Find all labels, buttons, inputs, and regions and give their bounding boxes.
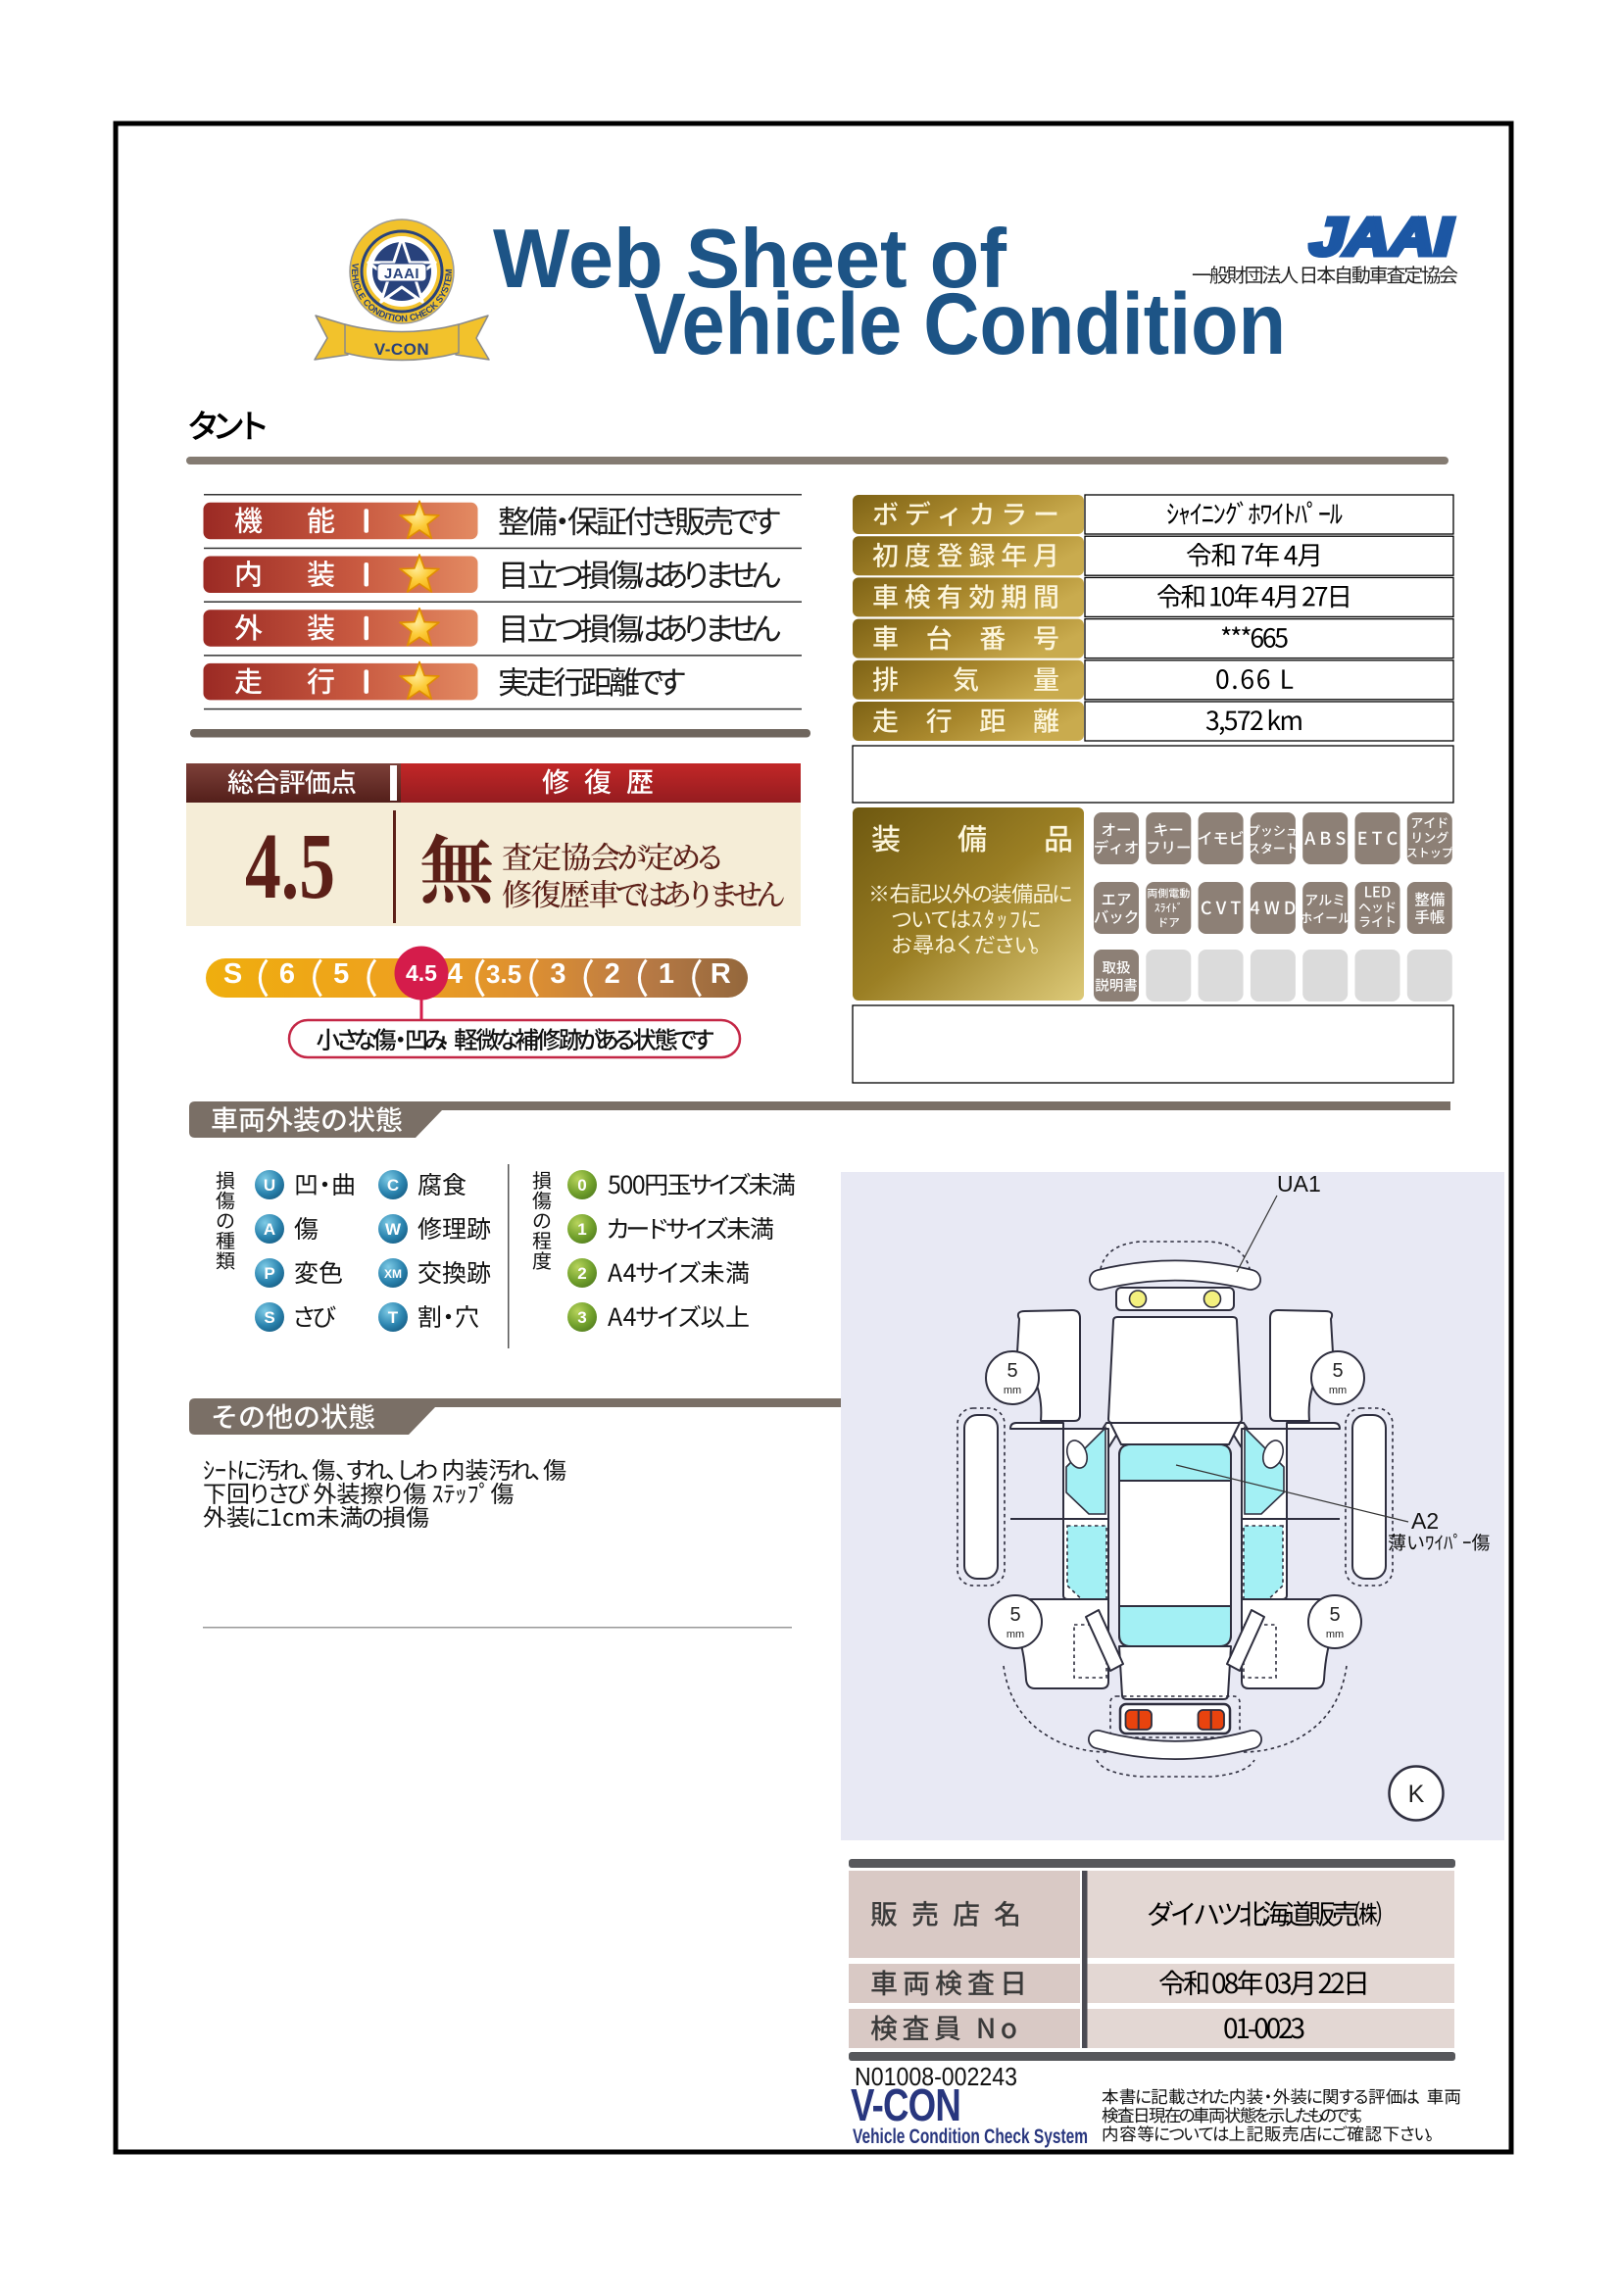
- svg-text:5: 5: [1009, 1604, 1020, 1626]
- svg-text:T: T: [388, 1308, 399, 1327]
- svg-text:C: C: [387, 1176, 399, 1195]
- svg-text:U: U: [264, 1176, 275, 1195]
- svg-text:P: P: [264, 1264, 274, 1283]
- svg-text:S: S: [223, 958, 242, 990]
- svg-text:UA1: UA1: [1277, 1171, 1321, 1197]
- svg-text:1: 1: [577, 1220, 586, 1239]
- svg-text:4.5: 4.5: [406, 960, 437, 986]
- svg-text:A: A: [264, 1220, 275, 1239]
- svg-text:K: K: [1408, 1781, 1425, 1808]
- svg-text:mm: mm: [1004, 1385, 1021, 1396]
- svg-text:4.5: 4.5: [245, 813, 335, 918]
- svg-text:4: 4: [447, 958, 463, 990]
- svg-text:JAAI: JAAI: [384, 266, 419, 282]
- svg-text:Vehicle Condition Check System: Vehicle Condition Check System: [853, 2125, 1088, 2148]
- svg-text:JAAI: JAAI: [1304, 207, 1460, 267]
- svg-text:A2: A2: [1411, 1508, 1439, 1534]
- svg-text:S: S: [264, 1308, 274, 1327]
- svg-text:2: 2: [577, 1264, 586, 1283]
- svg-text:3: 3: [577, 1308, 586, 1327]
- svg-text:5: 5: [1006, 1360, 1017, 1382]
- svg-text:Vehicle Condition: Vehicle Condition: [634, 274, 1286, 372]
- svg-text:2: 2: [605, 958, 620, 990]
- svg-text:mm: mm: [1006, 1629, 1024, 1640]
- svg-text:mm: mm: [1329, 1385, 1347, 1396]
- svg-text:5: 5: [333, 958, 349, 990]
- svg-text:6: 6: [279, 958, 295, 990]
- svg-text:R: R: [711, 958, 731, 990]
- svg-text:V-CON: V-CON: [851, 2079, 960, 2130]
- svg-text:V-CON: V-CON: [374, 340, 429, 359]
- svg-text:3.5: 3.5: [486, 959, 521, 989]
- svg-text:0: 0: [577, 1176, 586, 1195]
- svg-text:1: 1: [659, 958, 674, 990]
- svg-text:W: W: [385, 1220, 402, 1239]
- svg-text:XM: XM: [384, 1267, 402, 1281]
- svg-text:5: 5: [1332, 1360, 1343, 1382]
- svg-text:5: 5: [1329, 1604, 1340, 1626]
- svg-text:3: 3: [550, 958, 565, 990]
- svg-text:mm: mm: [1326, 1629, 1344, 1640]
